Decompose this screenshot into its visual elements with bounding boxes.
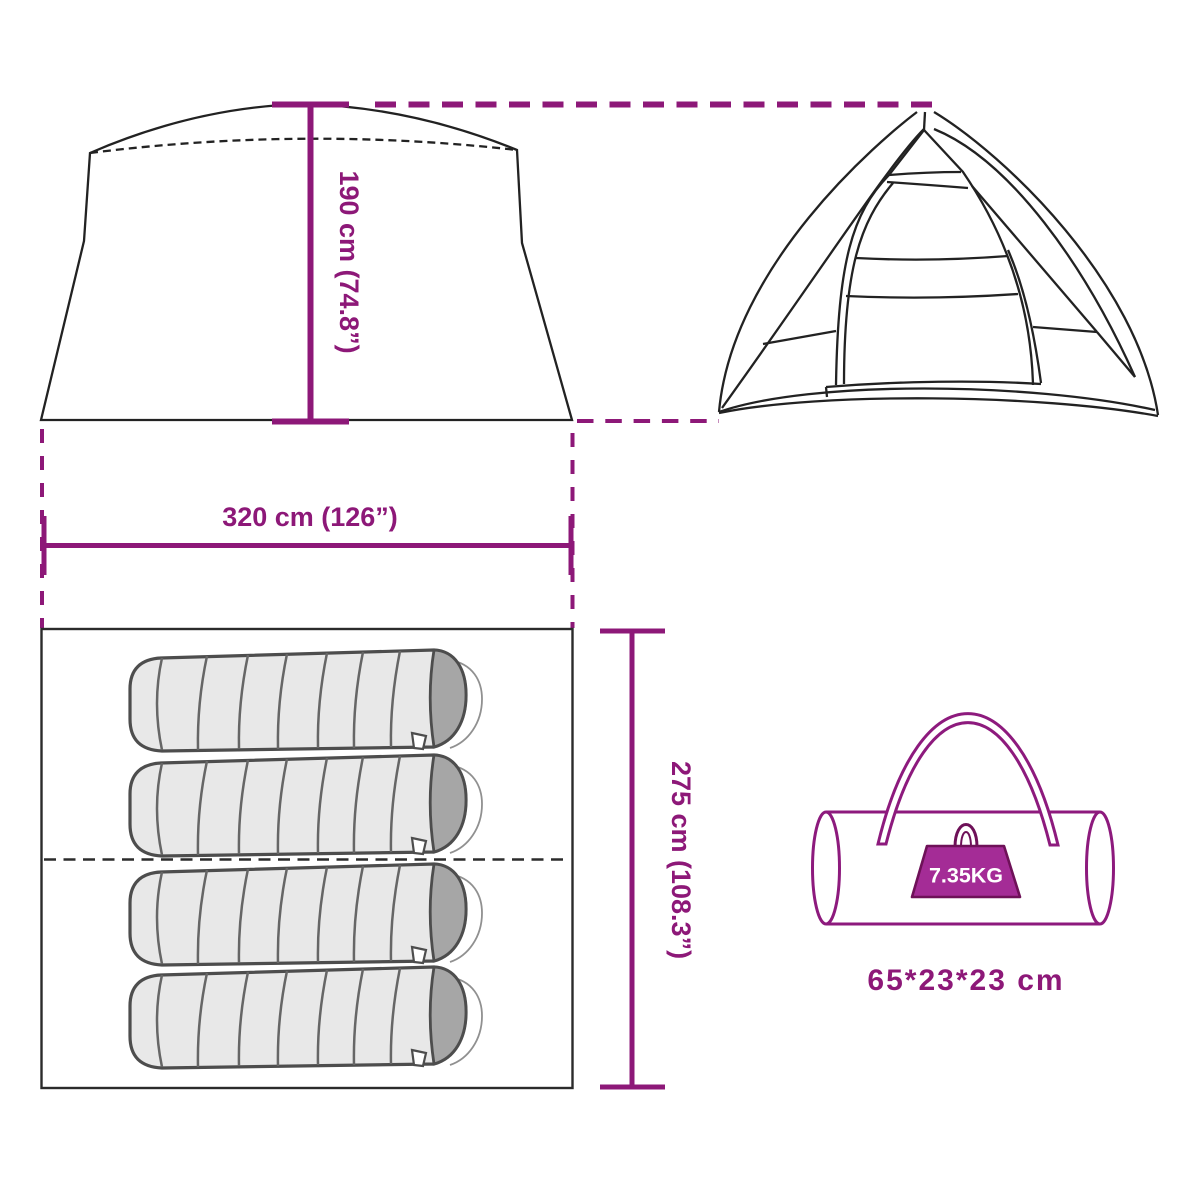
svg-text:320 cm (126”): 320 cm (126”) <box>222 502 398 532</box>
svg-text:65*23*23 cm: 65*23*23 cm <box>867 964 1064 997</box>
svg-text:275 cm (108.3”): 275 cm (108.3”) <box>666 761 696 959</box>
svg-text:190 cm (74.8”): 190 cm (74.8”) <box>334 170 364 353</box>
svg-text:7.35KG: 7.35KG <box>929 864 1003 888</box>
